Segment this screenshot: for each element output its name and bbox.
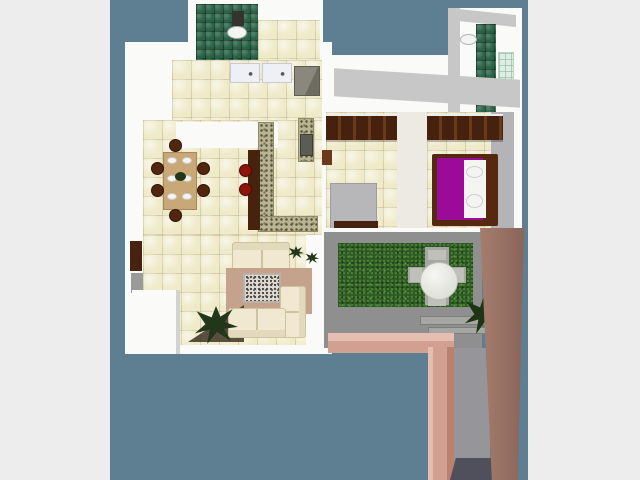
refrigerator (294, 66, 320, 96)
toilet-bowl (227, 26, 247, 39)
sectional-sofa-bottom (228, 308, 286, 338)
dinner-plate-1 (167, 157, 177, 164)
patio-chair-north (428, 250, 446, 260)
page-background (0, 0, 640, 480)
dinner-plate-6 (182, 193, 192, 200)
granite-counter-left (258, 122, 274, 230)
dining-chair-bottom (169, 209, 182, 222)
entry-door-brown (130, 241, 142, 271)
stove (300, 134, 313, 156)
bedroom1-nightstand (322, 150, 332, 165)
laundry-floor-tiles (258, 20, 320, 62)
granite-counter-bottom (258, 216, 318, 232)
dinner-plate-2 (182, 157, 192, 164)
dining-chair-top (169, 139, 182, 152)
bar-stool-2 (239, 183, 252, 196)
dining-chair-right-1 (197, 162, 210, 175)
dining-chair-left-2 (151, 184, 164, 197)
loveseat-sofa (232, 242, 290, 270)
patterned-carpet (243, 273, 281, 303)
pink-wall-top-face (328, 333, 454, 341)
table-centerpiece (175, 172, 186, 181)
bedroom2-wardrobe (427, 114, 503, 140)
tower-sink (460, 34, 477, 45)
bedroom2-pillow-2 (466, 194, 483, 208)
floorplan-render (0, 0, 640, 480)
bedroom1-wardrobe (326, 114, 397, 140)
kitchen-counter-left (230, 63, 260, 83)
tower-shower-tiles (476, 24, 496, 122)
pink-wall-vertical (428, 347, 454, 480)
dining-chair-right-2 (197, 184, 210, 197)
floorplan-photo (0, 0, 640, 480)
patio-round-table (420, 262, 458, 300)
bar-stool-1 (239, 164, 252, 177)
toilet-cistern (232, 11, 244, 26)
bedrooms-hallway-floor (397, 112, 427, 230)
kitchen-counter-right (262, 63, 292, 83)
patio-corridor-floor (454, 348, 490, 470)
dinner-plate-5 (167, 193, 177, 200)
bedroom2-pillow-1 (466, 166, 483, 178)
dining-chair-left-1 (151, 162, 164, 175)
terrace-wall-block (132, 290, 180, 354)
